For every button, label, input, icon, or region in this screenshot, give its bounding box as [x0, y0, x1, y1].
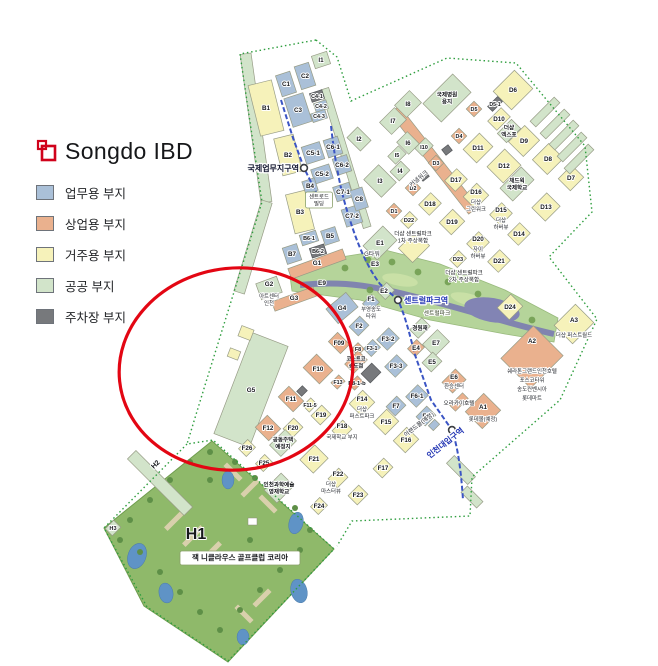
parcel-sub-label: 인천 [264, 299, 274, 307]
parcel-id-label: F23 [353, 492, 364, 499]
parcel-id-label: E5 [428, 359, 436, 366]
parcel-id-label: C5-1 [306, 150, 320, 157]
map-text-label: E9 [318, 280, 326, 287]
parcel-sub-label: 더샵 [326, 480, 336, 488]
tree-blob [277, 567, 283, 573]
songdo-ibd-district-map: G5I1C1C2C3C4-1C4-2C4-3B1B2B3C5-1C5-2C6-1… [0, 0, 658, 666]
parcel-id-label: B4 [306, 183, 315, 190]
parcel-id-label: F7 [392, 403, 400, 410]
legend-label: 주차장 부지 [65, 307, 126, 326]
parcel-id-label: F10 [313, 366, 324, 373]
parcel-id-label: D21 [493, 258, 505, 265]
parcel-id-label: D7 [567, 175, 576, 182]
parcel-id-label: D6 [509, 87, 518, 94]
parcel-name-label: 채드윅 [509, 177, 524, 185]
parcel-shape [297, 386, 308, 397]
parcel-id-label: B6-2 [312, 249, 324, 255]
station-marker[interactable] [395, 297, 402, 304]
parcel-sub-label: 포스코타워 [520, 376, 545, 384]
parcel-name-label: 공동주택 [273, 436, 294, 444]
tree-blob [207, 449, 213, 455]
parcel-name-label: 송도점 [349, 362, 364, 370]
parcel-id-label: D18 [424, 201, 436, 208]
parcel-id-label: B2 [284, 152, 293, 159]
parcel-id-label: F12 [263, 425, 274, 432]
parcel-id-label: D3 [433, 161, 440, 167]
parcel-id-label: D22 [404, 218, 414, 224]
tree-blob [257, 587, 263, 593]
station-label: 센트럴파크역 [404, 295, 448, 305]
parcel-sub-label: 쉐라톤그랜드인천호텔 [507, 367, 557, 375]
parcel-id-label: A3 [570, 317, 579, 324]
parcel-id-label: F3-2 [382, 336, 395, 343]
tree-blob [237, 607, 243, 613]
parcel-id-label: D14 [513, 231, 525, 238]
parcel-name-label: 엑스포 [501, 131, 516, 139]
parcel-id-label: G1 [313, 260, 322, 267]
parcel-id-label: F15 [381, 419, 392, 426]
parcel-id-label: D13 [540, 204, 552, 211]
parcel-id-label: C5-2 [315, 171, 329, 178]
parcel-id-label: D5 [471, 107, 478, 113]
legend-label: 거주용 부지 [65, 245, 126, 264]
tree-blob [292, 505, 298, 511]
parcel-id-label: D20 [472, 236, 484, 243]
parcel-id-label: C6-2 [335, 162, 349, 169]
parcel-id-label: D15 [495, 207, 507, 214]
parcel-sub-label: 더샵 퍼스트월드 [556, 331, 592, 339]
parcel-id-label: E4 [412, 345, 420, 352]
tree-blob [197, 609, 203, 615]
parcel-id-label: D12 [498, 163, 510, 170]
brand: Songdo IBD [36, 138, 193, 165]
legend-item-pub: 공공 부지 [36, 276, 193, 295]
parcel-id-label: C4-3 [313, 114, 325, 120]
parcel-name-label: 용지 [442, 98, 452, 106]
parcel-id-label: F17 [378, 465, 389, 472]
parcel-id-label: I8 [405, 101, 411, 108]
parcel-id-label: E1 [376, 240, 384, 247]
legend-swatch-park [36, 309, 54, 324]
map-text-label: G타워 [364, 250, 380, 258]
parcel-sub-label: 더샵 [471, 198, 481, 206]
legend-swatch-pub [36, 278, 54, 293]
page-title: Songdo IBD [65, 138, 193, 165]
parcel-sub-label: 송도컨벤시아 [517, 385, 547, 393]
parcel-sub-label: 더샵 [496, 216, 506, 224]
parcel-id-label: F24 [314, 503, 325, 510]
parcel-id-label: F09 [334, 340, 345, 347]
parcel-id-label: F11-5 [303, 403, 316, 409]
parcel-sub-label: 환승센터 [444, 382, 464, 390]
parcel-id-label: I2 [356, 136, 362, 143]
parcel-id-label: I5 [395, 153, 400, 159]
legend-items: 업무용 부지상업용 부지거주용 부지공공 부지주차장 부지 [36, 183, 193, 326]
parcel-id-label: B1 [262, 105, 271, 112]
parcel-sub-label: 하버뷰 [471, 252, 486, 260]
tree-blob [127, 517, 133, 523]
parcel-id-label: F1 [367, 296, 375, 303]
parcel-sub-label: 하버뷰 [494, 223, 509, 231]
legend-label: 공공 부지 [65, 276, 114, 295]
parcel-id-label: F21 [309, 456, 320, 463]
parcel-shape [361, 363, 381, 383]
legend-swatch-res [36, 247, 54, 262]
map-text-label: 더샵 센트럴파크 [394, 230, 432, 238]
tree-blob [157, 569, 163, 575]
songdo-ibd-logo-icon [36, 139, 60, 165]
parcel-id-label: C4-2 [315, 104, 327, 110]
parcel-id-label: I6 [405, 140, 411, 147]
parcel-id-label: D5-1 [489, 102, 500, 108]
parcel-id-label: F26 [242, 445, 253, 452]
parcel-id-label: E7 [432, 340, 440, 347]
parcel-id-label: D16 [470, 189, 482, 196]
parcel-id-label: I10 [420, 145, 428, 151]
parcel-name-label: 국제병원 [437, 91, 458, 99]
parcel-id-label: F13 [333, 380, 342, 386]
parcel-sub-label: 타워 [366, 312, 376, 320]
legend-item-res: 거주용 부지 [36, 245, 193, 264]
tree-blob [207, 477, 213, 483]
parcel-id-label: F22 [333, 471, 344, 478]
parcel-id-label: G4 [338, 305, 347, 312]
parcel-id-label: C3 [294, 107, 303, 114]
parcel-shape [442, 145, 453, 155]
tree-blob [117, 537, 123, 543]
parcel-sub-label: 더샵 [357, 405, 367, 413]
parcel-id-label: C8 [355, 196, 364, 203]
parcel-id-label: A2 [528, 338, 537, 345]
tree-blob [137, 549, 143, 555]
parcel-id-label: C4-1 [311, 94, 323, 100]
parcel-a1[interactable] [465, 393, 500, 428]
parcel-id-label: F6-1 [411, 393, 424, 400]
parcel-sub-label: 그린워크 [466, 205, 486, 213]
tree-blob [217, 627, 223, 633]
map-text-label: 잭 니클라우스 골프클럽 코리아 [192, 552, 288, 562]
parcel-id-label: D11 [472, 145, 484, 152]
parcel-id-label: F20 [288, 425, 299, 432]
parcel-id-label: B5 [326, 233, 335, 240]
parcel-id-label: D23 [453, 257, 463, 263]
parcel-name-label: 영재학교 [269, 488, 290, 496]
parcel-id-label: D4 [456, 134, 463, 140]
parcel-id-label: C1 [282, 81, 291, 88]
parcel-area[interactable] [297, 386, 308, 397]
tree-blob [177, 589, 183, 595]
parcel-id-label: D19 [446, 219, 458, 226]
parcel-name-label: 코스트코 [346, 356, 365, 363]
station-label: 국제업무지구역 [247, 163, 299, 173]
parcel-sub-label: 롯데마트 [522, 394, 542, 402]
station-label: 인천대입구역 [425, 425, 466, 460]
legend-item-park: 주차장 부지 [36, 307, 193, 326]
parcel-id-label: F18 [337, 423, 348, 430]
parcel-id-label: F3-3 [390, 363, 403, 370]
parcel-area[interactable] [361, 363, 381, 383]
legend-label: 상업용 부지 [65, 214, 126, 233]
parcel-area[interactable] [227, 348, 240, 360]
parcel-id-label: A1 [479, 404, 488, 411]
parcel-id-label: F8 [355, 347, 361, 353]
map-text-label: 센트로드 [309, 193, 329, 201]
parcel-name-label: 인천과학예술 [264, 481, 295, 489]
parcel-sub-label: 아트센터 [259, 292, 279, 300]
parcel-id-label: C2 [301, 73, 310, 80]
parcel-sub-label: 자이 [473, 245, 483, 253]
legend-label: 업무용 부지 [65, 183, 126, 202]
map-text-label: 오라카이호텔 [444, 399, 475, 407]
parcel-id-label: I3 [377, 178, 383, 185]
parcel-shape [227, 348, 240, 360]
parcel-area[interactable] [461, 486, 483, 508]
map-text-label: 빌딩 [314, 200, 324, 208]
station-marker[interactable] [301, 165, 308, 172]
parcel-shape [461, 486, 483, 508]
parcel-sub-label: 마스터뷰 [321, 487, 341, 495]
parcel-id-label: I1 [318, 57, 324, 64]
legend-panel: Songdo IBD 업무용 부지상업용 부지거주용 부지공공 부지주차장 부지 [36, 138, 193, 338]
legend-item-biz: 업무용 부지 [36, 183, 193, 202]
map-text-label: 1차 주상복합 [398, 237, 428, 245]
map-text-label: E3 [371, 261, 379, 268]
parcel-id-label: I7 [390, 118, 396, 125]
parcel-id-label: F11 [286, 396, 297, 403]
map-text-label: 2차 주상복합 [449, 276, 479, 284]
parcel-id-label: B7 [288, 251, 297, 258]
parcel-id-label: D24 [504, 304, 516, 311]
tree-blob [147, 497, 153, 503]
parcel-name-label: 더샵 [504, 124, 515, 132]
parcel-id-label: D10 [493, 116, 505, 123]
parcel-shape [465, 393, 500, 428]
map-text-label: 더샵 센트럴파크 [445, 269, 483, 277]
parcel-id-label: D17 [450, 177, 462, 184]
parcel-id-label: F2 [355, 323, 363, 330]
parcel-id-label: E6 [450, 374, 458, 381]
parcel-id-label: D8 [544, 156, 553, 163]
parcel-id-label: G5 [247, 387, 256, 394]
parcel-name-label: 경원재 [412, 324, 427, 332]
parcel-id-label: E2 [380, 288, 388, 295]
parcel-id-label: B6-1 [303, 236, 315, 242]
parcel-sub-label: 퍼스트파크 [350, 412, 375, 420]
parcel-id-label: G3 [290, 295, 299, 302]
parcel-name-label: 국제학교 [507, 184, 528, 192]
parcel-id-label: I4 [397, 168, 403, 175]
parcel-id-label: C6-1 [326, 144, 340, 151]
parcel-sub-label: 국제학교 부지 [326, 433, 357, 441]
parcel-id-label: G2 [265, 281, 274, 288]
parcel-id-label: C7-1 [336, 189, 350, 196]
legend-swatch-biz [36, 185, 54, 200]
parcel-id-label: D9 [520, 138, 529, 145]
parcel-id-label: F19 [316, 412, 327, 419]
parcel-area[interactable] [442, 145, 453, 155]
map-text-label: 센트럴파크 [424, 309, 451, 317]
tree-blob [247, 537, 253, 543]
parcel-name-label: 예정지 [275, 443, 290, 451]
map-text-label: H1 [186, 526, 207, 543]
parcel-id-label: C7-2 [345, 213, 359, 220]
parcel-id-label: F3-1 [366, 346, 377, 352]
parcel-id-label: B3 [296, 209, 305, 216]
parcel-id-label: F14 [357, 396, 368, 403]
legend-item-com: 상업용 부지 [36, 214, 193, 233]
parcel-id-label: D1 [391, 209, 398, 215]
parcel-sub-label: 부영송도 [361, 305, 381, 313]
legend-swatch-com [36, 216, 54, 231]
parcel-id-label: H3 [109, 526, 116, 532]
parcel-sub-label: 롯데몰(예정) [469, 415, 498, 423]
